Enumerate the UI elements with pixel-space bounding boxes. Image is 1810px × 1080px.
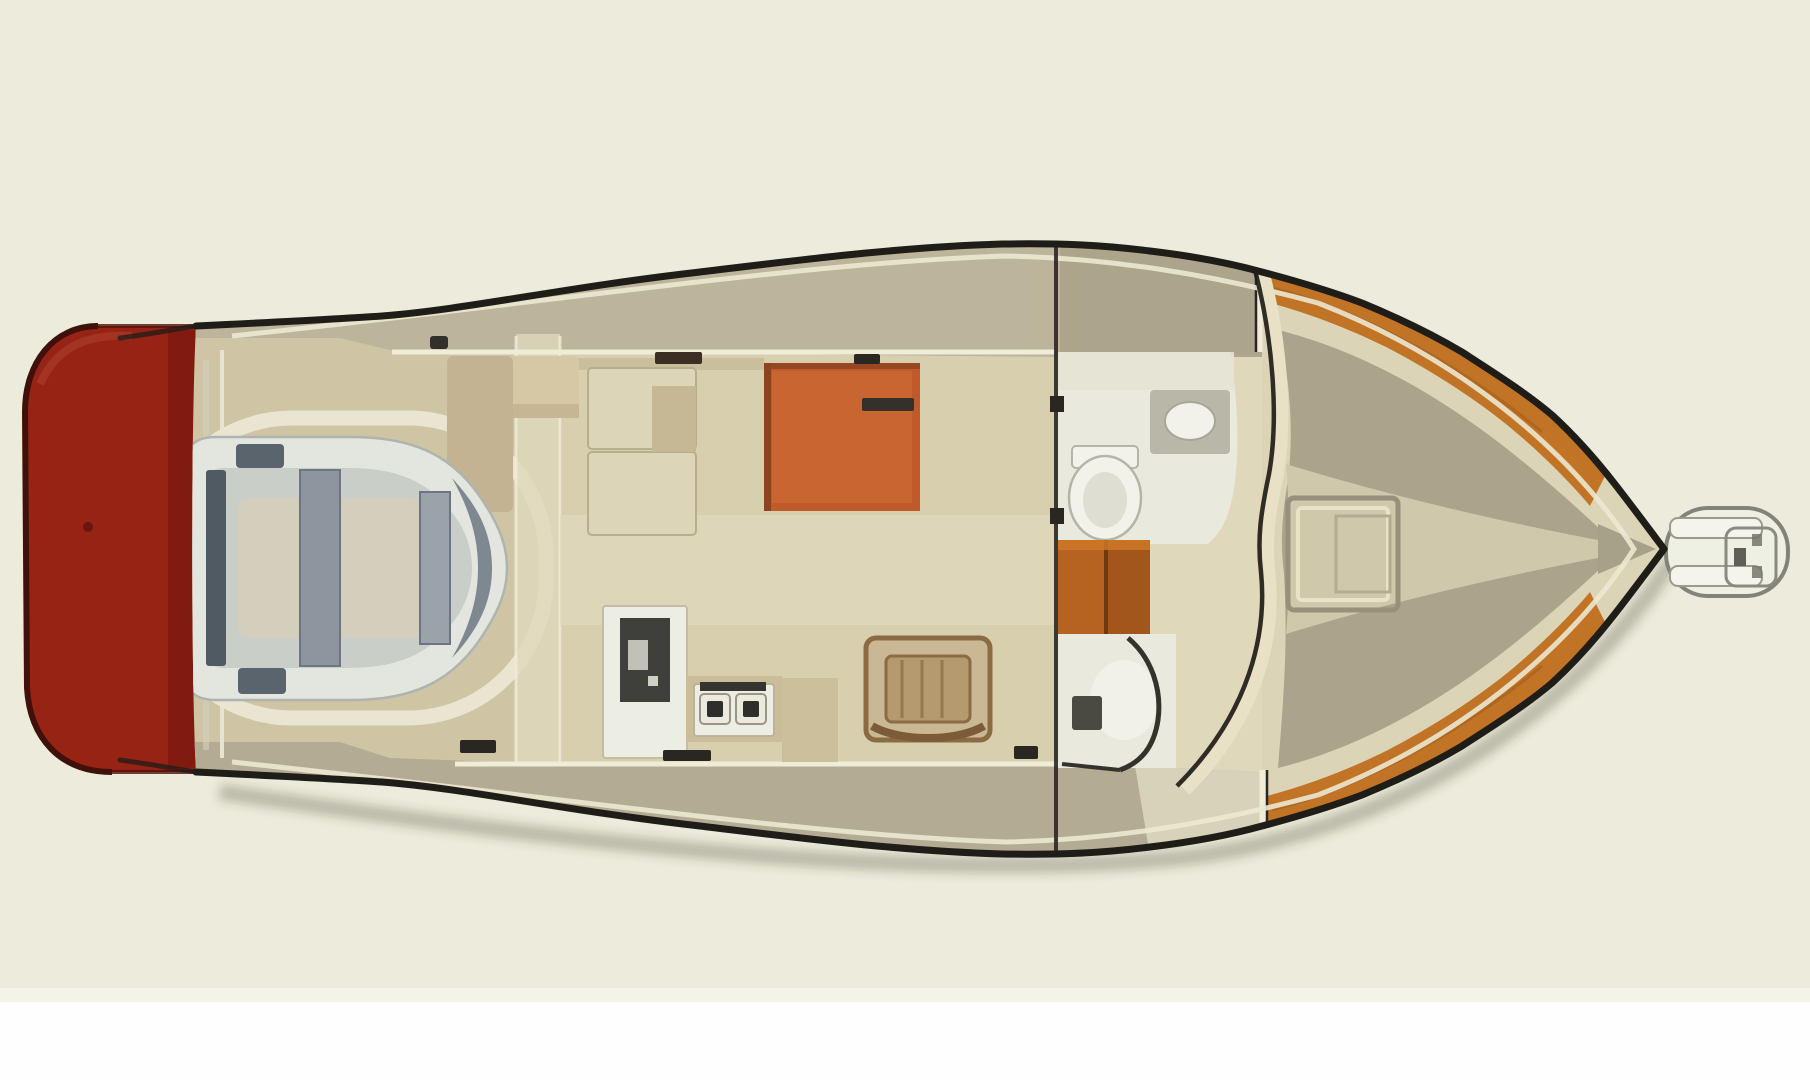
salon-settee (588, 368, 696, 535)
stove-control-strip (700, 682, 766, 691)
handrail-mark-1 (655, 352, 702, 364)
tender-dinghy (186, 437, 507, 700)
head-sink (1165, 402, 1215, 440)
chair-seat (886, 656, 970, 722)
floorplan-canvas (0, 0, 1810, 1080)
salon-chair (866, 638, 990, 740)
dinette-table (764, 363, 920, 511)
burner-2 (743, 701, 759, 717)
shower-fixture (1072, 696, 1102, 730)
platform-drain-dot (83, 522, 93, 532)
anchor-roller (1734, 548, 1746, 566)
deck-cleat-top (430, 336, 448, 349)
dinghy-thwart-2 (420, 492, 450, 644)
swim-platform-shade (168, 330, 196, 768)
table-left-edge (764, 363, 771, 511)
dinghy-thwart-1 (300, 470, 340, 666)
deck-gate-mark (1014, 746, 1038, 759)
bottom-white-strip (0, 1002, 1810, 1080)
steps-highlight (1058, 540, 1150, 550)
anchor-detail-1 (1752, 534, 1762, 546)
steps-divider (1104, 540, 1108, 634)
background-fade-band (0, 988, 1810, 1004)
head-counter-top (1058, 352, 1234, 390)
dinghy-transom (206, 470, 226, 666)
toilet-bowl-inner (1083, 472, 1127, 528)
bow-pulpit (1660, 508, 1788, 596)
galley-counter-right (782, 678, 838, 762)
door-track-mark (862, 398, 914, 411)
table-highlight (772, 371, 912, 503)
dinghy-fitting-bottom (238, 668, 286, 694)
sink-faucet (648, 676, 658, 686)
deck-cleat-bottom (460, 740, 496, 753)
swim-platform (25, 326, 196, 772)
settee-cushion-2 (588, 452, 696, 535)
settee-inset (652, 386, 696, 452)
galley-base-mark (663, 750, 711, 761)
sink-basin (628, 640, 648, 670)
companionway-steps (1058, 540, 1150, 634)
table-top-edge (764, 363, 920, 369)
head-compartment (1050, 352, 1237, 544)
handrail-mark-2 (854, 354, 880, 364)
dinghy-fitting-top (236, 444, 284, 468)
anchor-detail-2 (1752, 566, 1762, 578)
bench-front-edge (447, 404, 579, 418)
shower-compartment (1058, 634, 1176, 770)
pulpit-rail-bottom (1670, 566, 1762, 586)
boat-floorplan-illustration (0, 0, 1810, 1080)
burner-1 (707, 701, 723, 717)
steps-shade (1108, 540, 1150, 634)
